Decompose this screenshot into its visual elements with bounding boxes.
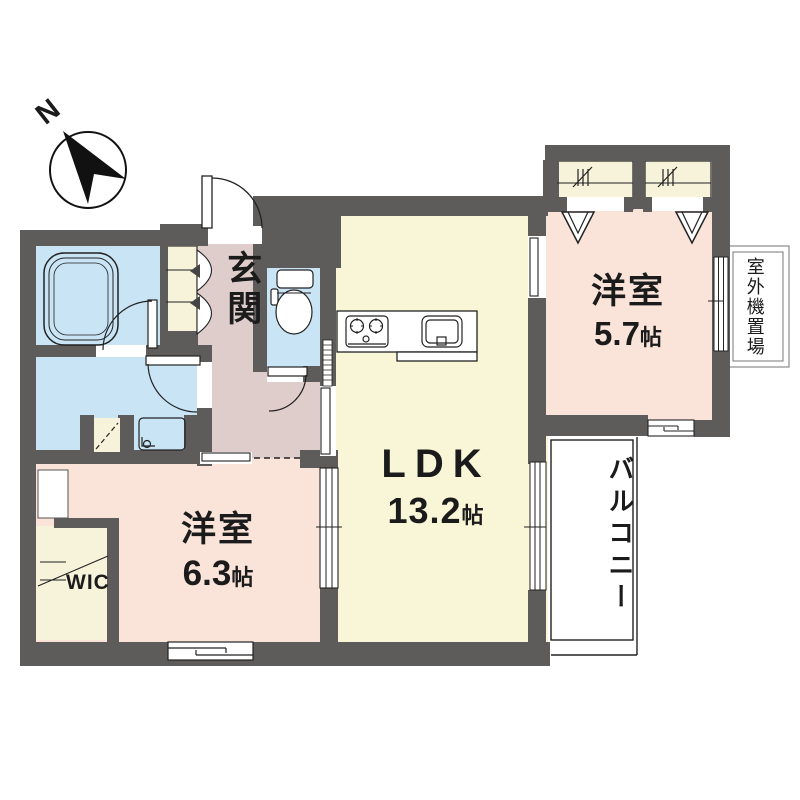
linen-niche [94,418,120,452]
window-bedroom1-balcony [648,420,694,436]
ldk-bedroom1-door [528,236,546,298]
shoe-cabinet [166,246,197,336]
entrance-label: 玄関 [221,250,261,330]
bedroom2-label: 洋室 6.3帖 [152,510,284,595]
ldk-floor [330,214,548,642]
compass [50,131,126,208]
floorplan-canvas [0,0,800,800]
bedroom1-area: 5.7帖 [566,315,690,353]
outdoor-unit-label: 室外機置場 [744,257,765,357]
window-bedroom2 [168,642,253,660]
wic-label: WIC [66,571,110,595]
ldk-bedroom2-sliding-partition [316,468,342,588]
ldk-door [320,386,336,456]
north-arrow-icon [63,131,126,204]
pipe-shaft-hatch [323,340,332,386]
bedroom1-name: 洋室 [566,272,690,312]
storage-niche [38,470,68,518]
bedroom2-name: 洋室 [152,510,284,550]
ldk-name: LDK [358,441,514,487]
floor-plan: N 玄関 LDK 13.2帖 洋室 5.7帖 洋室 6.3帖 WIC バルコニー… [0,0,800,800]
bedroom2-area: 6.3帖 [152,554,284,594]
ldk-area: 13.2帖 [358,490,514,531]
ldk-label: LDK 13.2帖 [358,441,514,531]
bedroom1-label: 洋室 5.7帖 [566,272,690,353]
balcony-label: バルコニー [604,455,634,615]
